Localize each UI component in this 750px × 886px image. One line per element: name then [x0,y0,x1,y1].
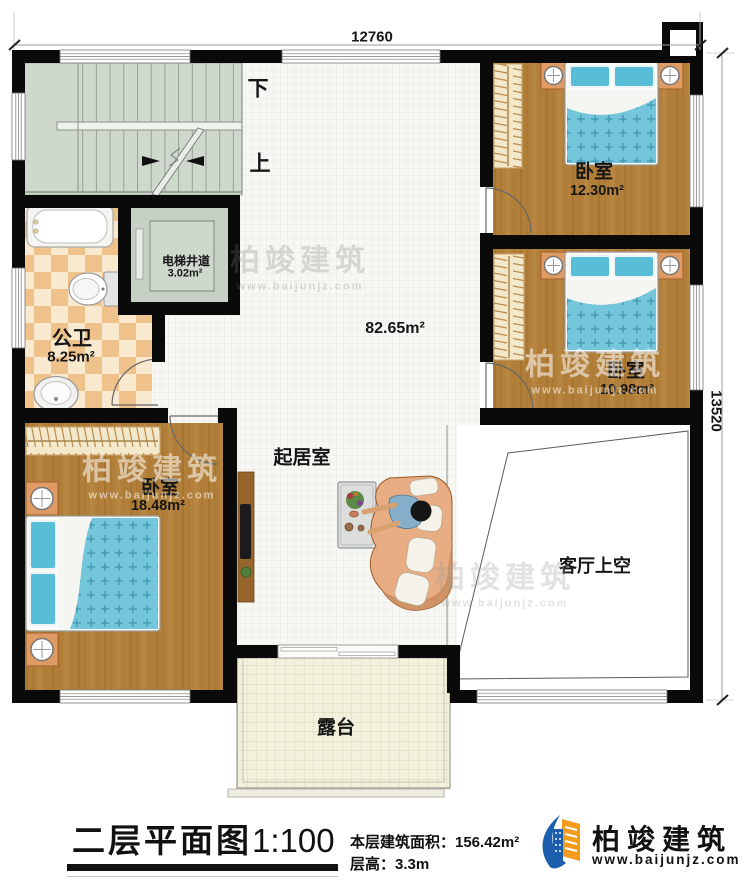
room-label: 卧室 [141,479,179,498]
roof-notch [662,22,703,63]
double-bed [565,62,658,165]
room-area: 3.02m² [168,269,203,280]
nightstand [657,252,683,279]
floor-plan-drawing [0,0,750,800]
company-logo-url: www.baijunjz.com [592,852,741,867]
tv-cabinet [238,472,254,602]
title-underline-thin [67,876,338,877]
plan-title: 二层平面图1:100 [72,814,335,862]
bathtub [27,205,113,247]
room-label: 电梯井道 [162,255,210,267]
plan-scale: 1:100 [252,822,335,859]
nightstand [26,633,58,666]
nightstand [541,62,566,89]
building-area-line: 本层建筑面积：156.42m² [350,831,519,852]
room-label: 露台 [317,719,355,738]
wardrobe [26,427,160,455]
floor-plan-page: { "plan": { "dimensions": { "top": "1276… [0,0,750,886]
nightstand [26,482,58,515]
double-bed [26,516,160,631]
room-area: 82.65m² [365,321,425,337]
plan-title-text: 二层平面图 [72,822,252,859]
nightstand [657,62,683,89]
dimension-top: 12760 [351,30,393,45]
company-logo-icon [540,811,590,875]
room-area: 12.30m² [570,184,624,199]
wardrobe [494,254,524,360]
coffee-table [338,482,376,548]
dimension-right: 13520 [709,390,724,432]
room-area: 10.98m² [600,383,654,398]
sliding-door [278,645,398,658]
room-label: 卧室 [607,362,645,381]
stairs-up-label: 上 [250,154,271,175]
toilet [69,272,119,306]
room-label: 卧室 [575,163,613,182]
double-bed [565,252,658,352]
room-label: 起居室 [273,449,330,468]
floor-height-line: 层高：3.3m [350,853,429,874]
room-area: 18.48m² [131,499,185,514]
wardrobe [494,64,522,168]
title-underline [67,864,338,871]
nightstand [541,252,566,279]
stairs-down-label: 下 [248,79,269,100]
room-area: 8.25m² [47,350,95,365]
room-label: 客厅上空 [559,557,631,575]
room-label: 公卫 [52,329,92,349]
